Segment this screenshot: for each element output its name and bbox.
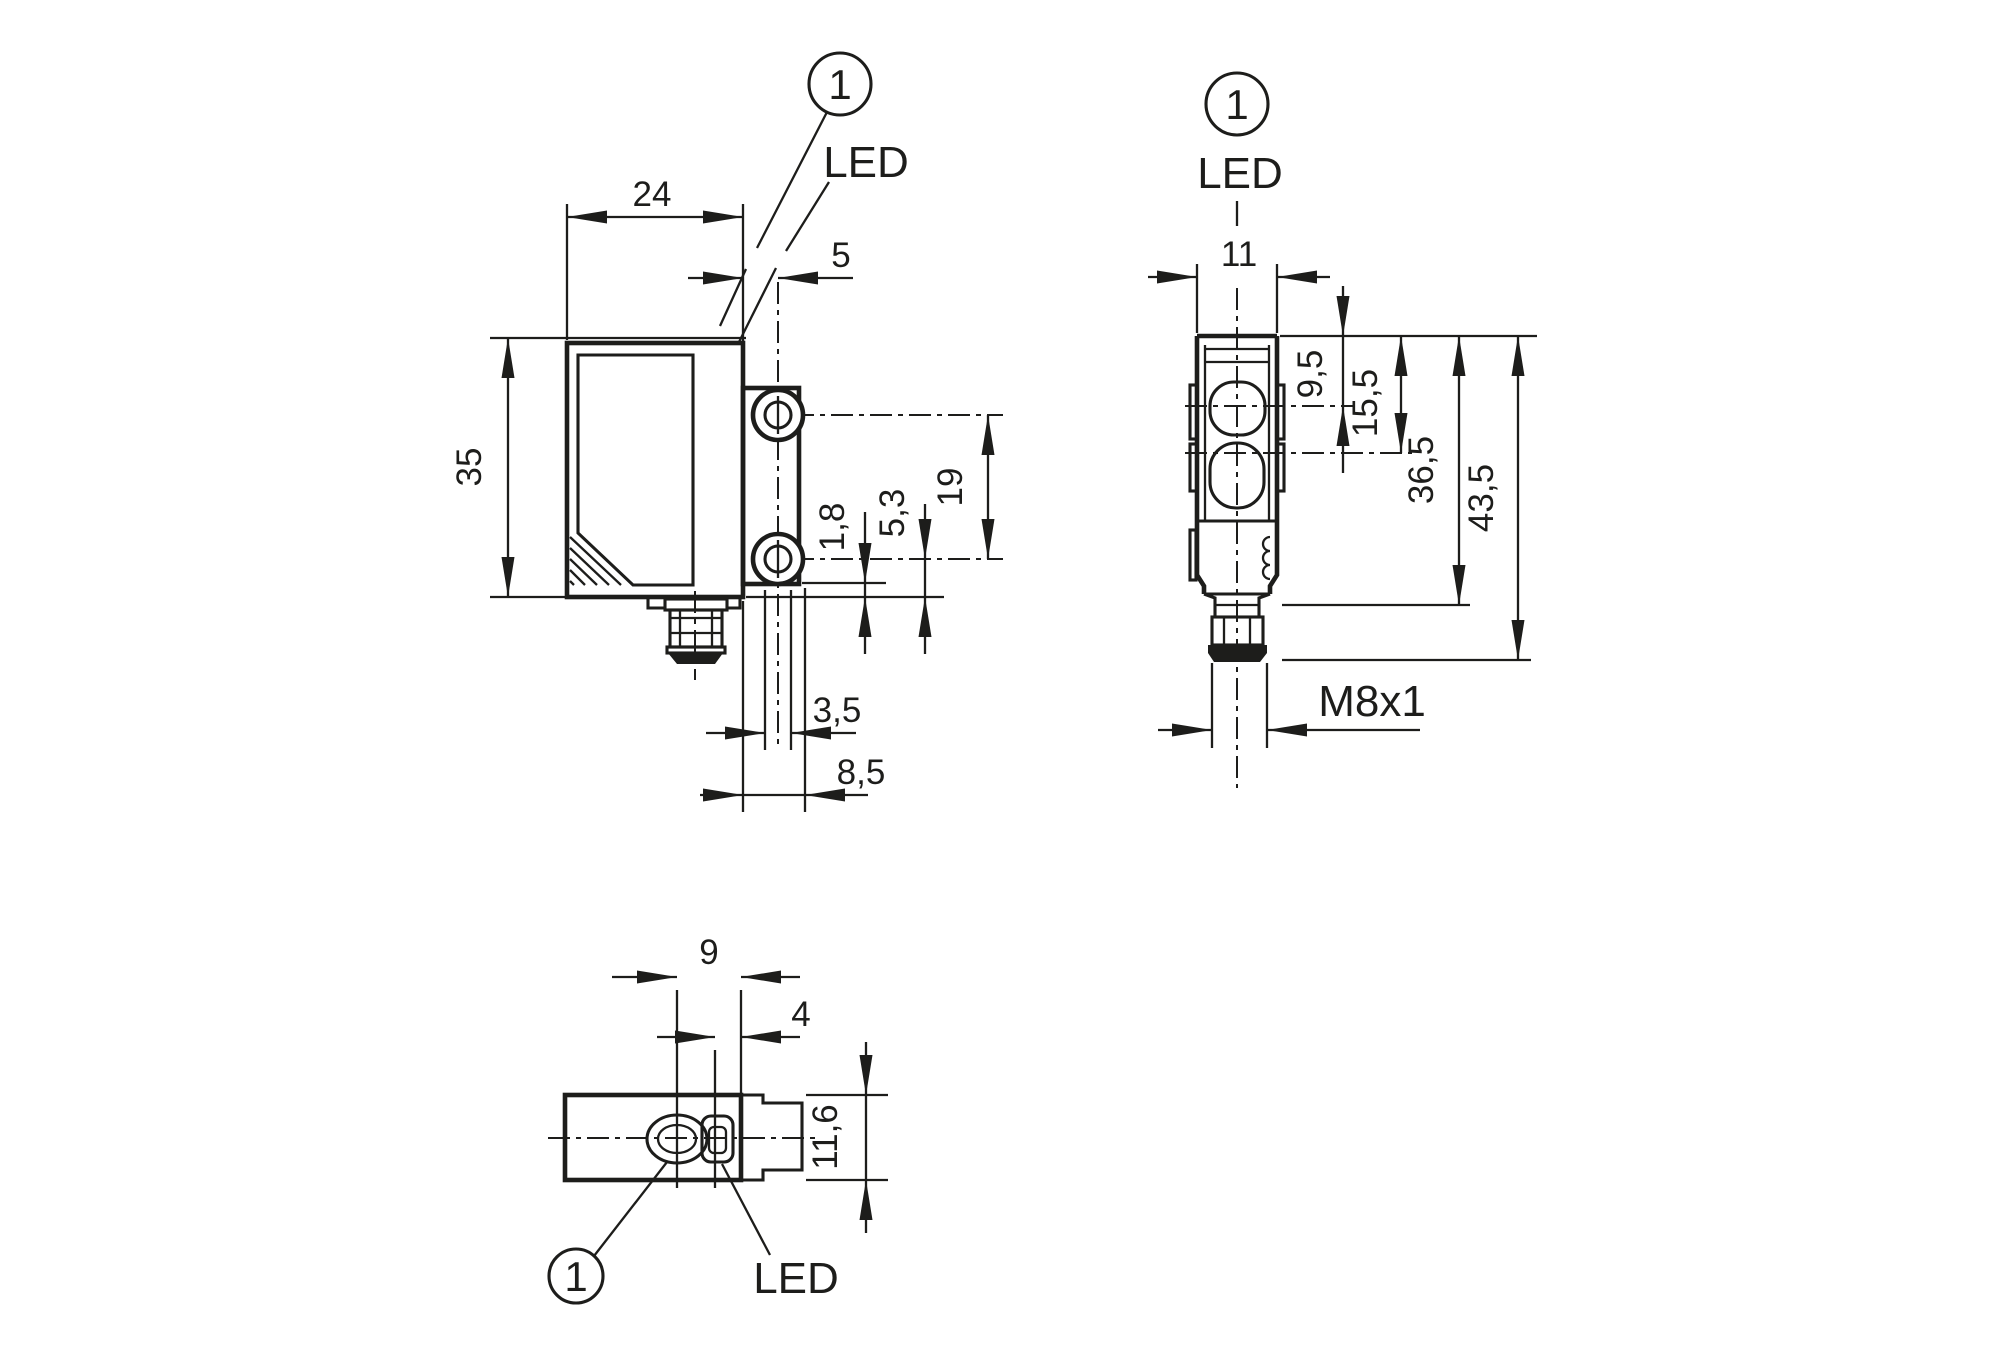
front-callouts: 1 LED xyxy=(1197,73,1283,226)
led-label: LED xyxy=(753,1254,839,1303)
dim-bottom-led-to-face: 4 xyxy=(791,995,810,1034)
side-view: 24 5 35 19 5,3 1,8 3,5 8,5 xyxy=(450,53,1003,812)
side-lens-window xyxy=(578,355,693,585)
dim-bottom-height: 11,6 xyxy=(806,1104,845,1170)
front-dimensions: 11 9,5 15,5 36,5 43,5 M8x1 xyxy=(1148,235,1518,730)
technical-drawing-page: 24 5 35 19 5,3 1,8 3,5 8,5 xyxy=(0,0,2000,1357)
led-label: LED xyxy=(823,138,909,187)
dim-side-bracket-to-bottom: 1,8 xyxy=(813,503,852,552)
dim-front-emitter-axis: 15,5 xyxy=(1346,369,1385,437)
front-view: 1 LED xyxy=(1148,73,1537,788)
led-window-inner xyxy=(709,1127,726,1153)
callout-leader xyxy=(594,1162,667,1256)
dim-front-receiver-axis: 9,5 xyxy=(1291,350,1330,399)
side-dimensions: 24 5 35 19 5,3 1,8 3,5 8,5 xyxy=(450,175,988,795)
callout-number: 1 xyxy=(1225,81,1248,128)
leader-lines xyxy=(720,112,829,344)
dim-front-body-length: 36,5 xyxy=(1402,436,1441,504)
dim-side-hole-spacing: 19 xyxy=(931,468,970,507)
dim-side-face-to-holes: 5 xyxy=(831,236,850,275)
bottom-view: 9 4 11,6 1 LED xyxy=(548,933,888,1303)
dim-side-bracket-width: 8,5 xyxy=(837,753,886,792)
bottom-dimensions: 9 4 11,6 xyxy=(612,933,866,1233)
dim-side-hole-to-bottom: 5,3 xyxy=(873,489,912,538)
dim-side-width: 24 xyxy=(633,175,672,214)
dim-bottom-lens-to-face: 9 xyxy=(699,933,718,972)
led-notches xyxy=(1263,537,1270,579)
sensor-dimension-drawing: 24 5 35 19 5,3 1,8 3,5 8,5 xyxy=(0,0,2000,1357)
hatch-lines xyxy=(570,537,621,585)
dim-front-total-length: 43,5 xyxy=(1462,464,1501,532)
side-connector xyxy=(648,591,740,680)
callout-number: 1 xyxy=(828,61,851,108)
side-mounting-bracket xyxy=(743,388,803,584)
dim-front-width: 11 xyxy=(1221,235,1257,274)
bottom-callouts: 1 LED xyxy=(549,1162,839,1303)
side-callouts: 1 LED xyxy=(720,53,909,344)
led-label: LED xyxy=(1197,149,1283,198)
callout-number: 1 xyxy=(564,1253,587,1300)
dim-side-height: 35 xyxy=(450,448,489,487)
thread-label: M8x1 xyxy=(1318,677,1426,726)
dim-side-hole-width: 3,5 xyxy=(813,691,862,730)
